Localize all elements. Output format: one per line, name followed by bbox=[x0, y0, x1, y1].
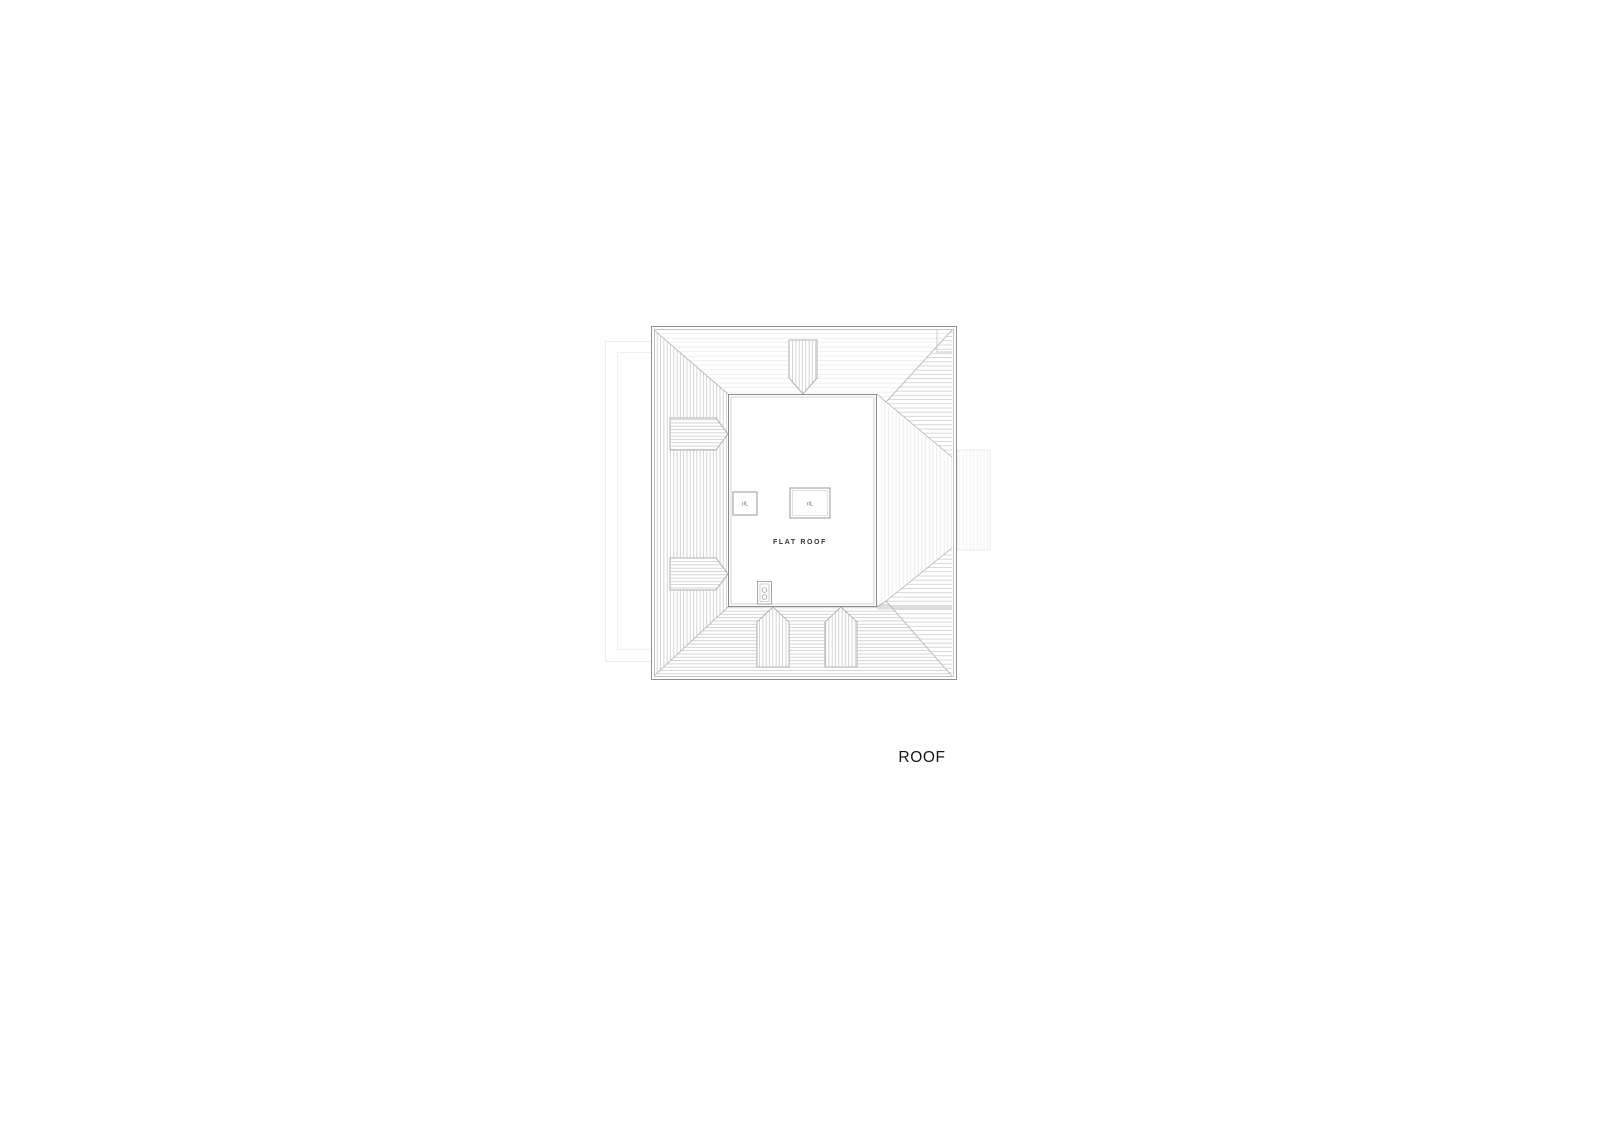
ghost-outline-left-outer bbox=[606, 342, 652, 662]
ghost-outline-left bbox=[606, 342, 652, 662]
sheet-title-label: ROOF bbox=[898, 749, 945, 766]
vent-outer bbox=[758, 582, 772, 605]
dormer-left-lower bbox=[670, 558, 728, 590]
rooflight-large-label: r/L bbox=[807, 502, 813, 508]
rooflight-small-label: r/L bbox=[742, 502, 748, 508]
box-gutter-band bbox=[877, 605, 952, 610]
dormer-left-upper bbox=[670, 418, 728, 450]
ghost-outline-right bbox=[958, 450, 991, 550]
ghost-outline-left-inner bbox=[618, 353, 652, 650]
rooflight-large: r/L bbox=[790, 488, 830, 518]
dormer-hatch bbox=[670, 558, 728, 590]
flat-roof-label: FLAT ROOF bbox=[773, 539, 827, 546]
page-canvas: r/L r/L FLAT ROOF ROOF bbox=[0, 0, 1600, 1132]
dormer-hatch bbox=[670, 418, 728, 450]
roof-vent-box bbox=[758, 582, 772, 605]
rooflight-small: r/L bbox=[733, 492, 757, 515]
roof-plan-drawing: r/L r/L FLAT ROOF ROOF bbox=[0, 0, 1600, 1132]
